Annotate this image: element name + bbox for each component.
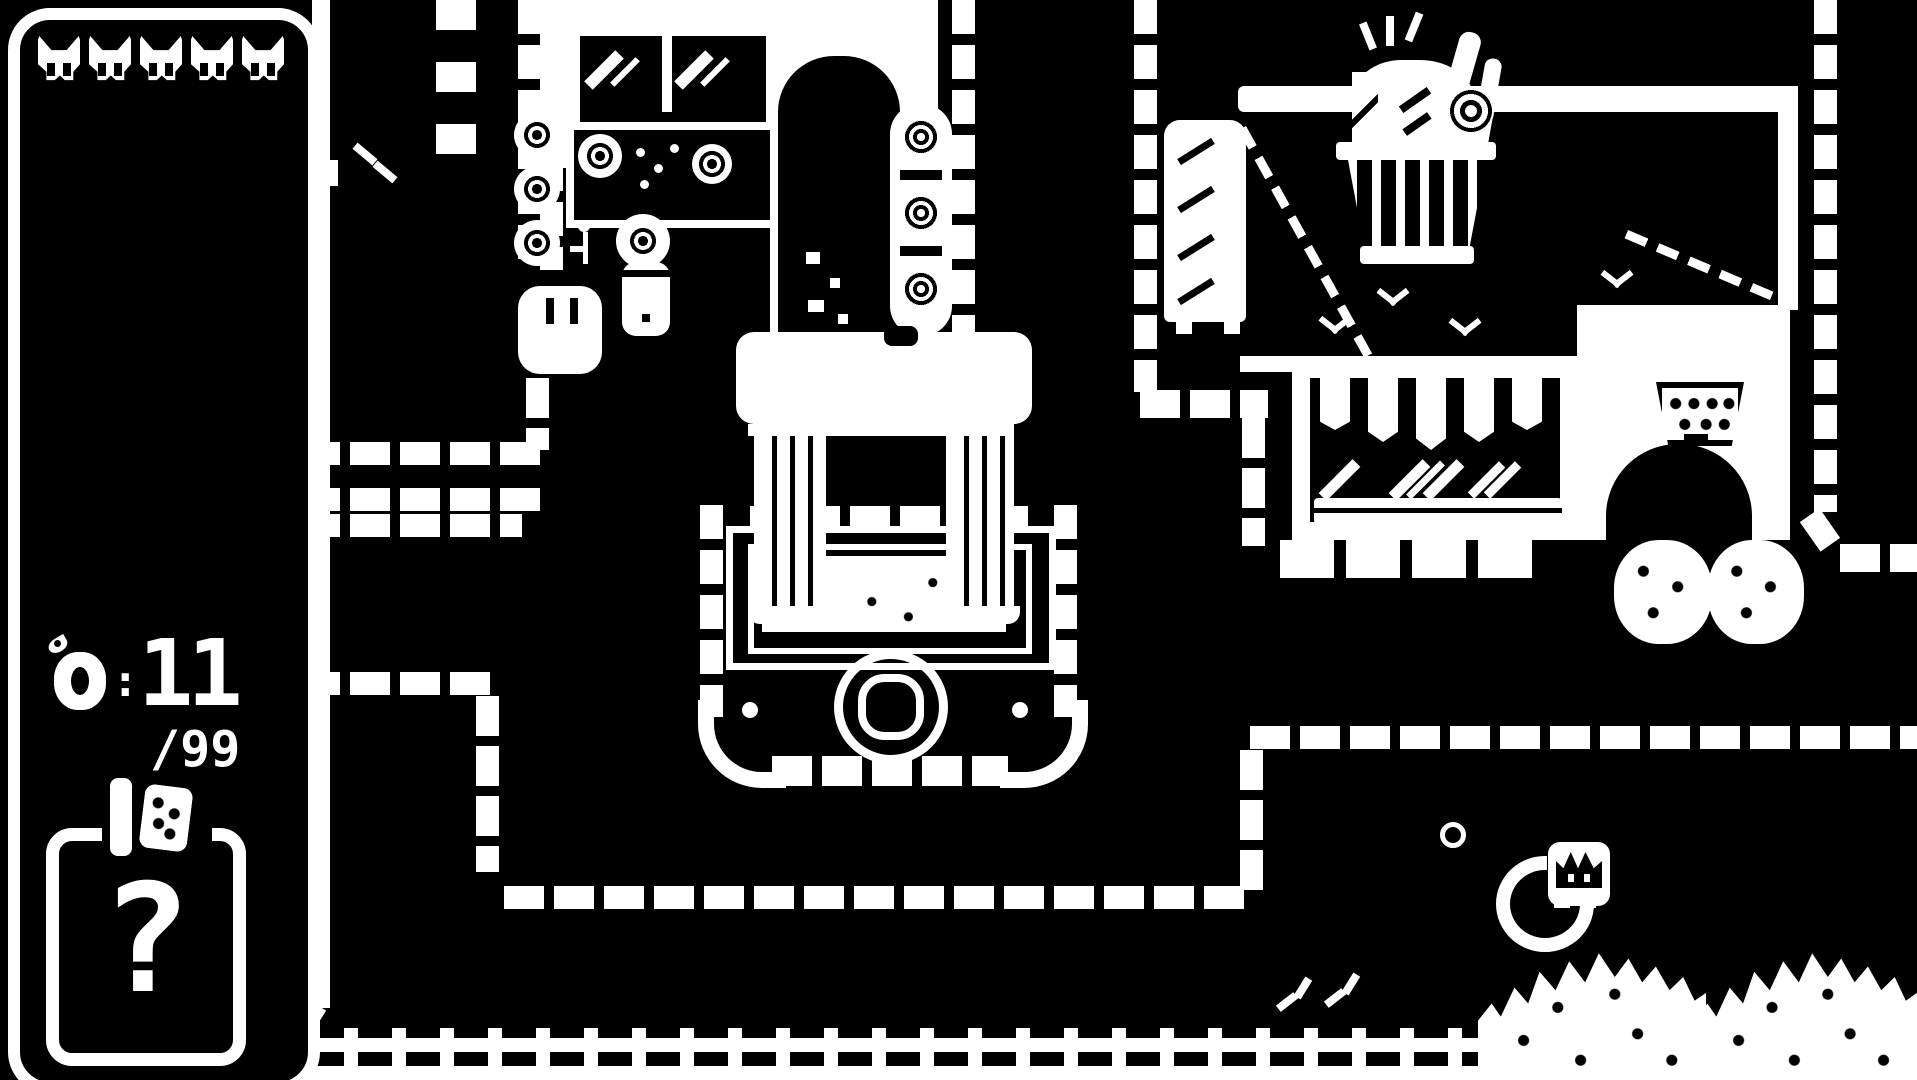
awning-stripe xyxy=(1464,378,1494,442)
white-jar xyxy=(518,286,602,374)
flower-rosette-icon xyxy=(896,188,946,238)
roof-mark-icon xyxy=(1318,316,1352,334)
path-border-b2 xyxy=(300,514,522,537)
monument-entablature xyxy=(748,424,1014,436)
cat-head-icon xyxy=(140,36,182,83)
flower-rosette-icon xyxy=(616,214,670,268)
sign-board-top xyxy=(1238,86,1798,112)
path-border-east xyxy=(1250,726,1917,749)
shop-west-wall xyxy=(1134,0,1157,392)
window-divider xyxy=(662,36,672,112)
well-ring-inner xyxy=(858,674,924,740)
map-right-wall-east xyxy=(1840,544,1917,572)
shop-yard-border xyxy=(1140,390,1268,418)
item-slot: ? xyxy=(46,828,246,1066)
path-border-c-south xyxy=(504,886,1254,909)
flower-rosette-icon xyxy=(896,264,946,314)
planter-box xyxy=(566,122,778,228)
window xyxy=(572,28,774,136)
hedge-bush-right xyxy=(1694,948,1917,1080)
flower-rosette-icon xyxy=(514,112,560,158)
roof-mark-icon xyxy=(1376,288,1410,306)
flower-rosette-icon xyxy=(514,166,560,212)
path-border-a-vertical xyxy=(526,378,549,450)
hedge-strip xyxy=(890,104,952,336)
basin-east-border xyxy=(1054,505,1077,717)
lives-row xyxy=(38,36,284,83)
room-right-wall xyxy=(952,0,975,336)
flower-rosette-icon xyxy=(896,112,946,162)
cat-head xyxy=(1548,842,1610,906)
path-border-b xyxy=(300,488,546,511)
awning-stripe xyxy=(1368,378,1398,442)
flower-rosette-icon xyxy=(692,144,732,184)
counter-separator: : xyxy=(112,656,139,707)
basin-west-border xyxy=(700,505,723,717)
cat-head-icon xyxy=(38,36,80,83)
flower-rosette-icon xyxy=(514,220,560,266)
roof-mark-icon xyxy=(1448,318,1482,336)
apple-icon xyxy=(54,652,106,710)
game-screen: : 11 /99 ? xyxy=(0,0,1917,1080)
cat-head-icon xyxy=(242,36,284,83)
storefront-cornice xyxy=(1240,356,1580,372)
item-slot-symbol: ? xyxy=(59,853,233,1027)
shop-yard-border-vertical xyxy=(1242,418,1265,546)
flower-rosette-icon xyxy=(578,134,622,178)
monument-roof-notch xyxy=(884,326,918,346)
awning-stripe xyxy=(1512,378,1542,430)
cabinet-foot xyxy=(1224,320,1240,334)
cat-head-icon xyxy=(89,36,131,83)
roof-edge-right xyxy=(1624,230,1791,308)
storefront-path xyxy=(1280,540,1542,578)
roof-mark-icon xyxy=(1600,270,1634,288)
sign-board-post xyxy=(1778,86,1798,310)
awning-stripe xyxy=(1416,378,1446,450)
topiary-bush-icon xyxy=(1614,540,1712,644)
path-border-c xyxy=(300,672,492,695)
cabinet-foot xyxy=(1176,320,1192,334)
topiary-bush-icon xyxy=(1708,540,1804,644)
shop-shelf xyxy=(1314,498,1562,524)
hedge-bush-left xyxy=(1478,948,1706,1080)
berry-pouch-icon xyxy=(138,783,193,852)
awning-stripe xyxy=(1320,378,1350,430)
map-right-wall-corner xyxy=(1800,508,1840,551)
tall-cabinet xyxy=(1164,120,1246,322)
cat-head-icon xyxy=(191,36,233,83)
column-base-right xyxy=(940,606,1020,624)
room-outer-bricks xyxy=(436,0,476,162)
pellet-icon xyxy=(1440,822,1466,848)
path-border-c-east-vertical xyxy=(1240,750,1263,892)
path-border-a xyxy=(300,442,543,465)
cat-face xyxy=(1556,852,1602,888)
monument-roof-slab xyxy=(736,332,1032,424)
counter-total: /99 xyxy=(150,720,240,778)
monument-column-left xyxy=(754,436,826,622)
item-slot-topper xyxy=(102,772,212,858)
dark-doorway xyxy=(770,48,908,348)
counter-value: 11 xyxy=(138,620,237,727)
map-right-wall xyxy=(1814,0,1837,512)
monument-column-right xyxy=(946,436,1014,622)
column-base-left xyxy=(748,606,832,624)
path-border-c-vertical xyxy=(476,696,499,872)
hud-sidebar: : 11 /99 ? xyxy=(8,8,320,1080)
